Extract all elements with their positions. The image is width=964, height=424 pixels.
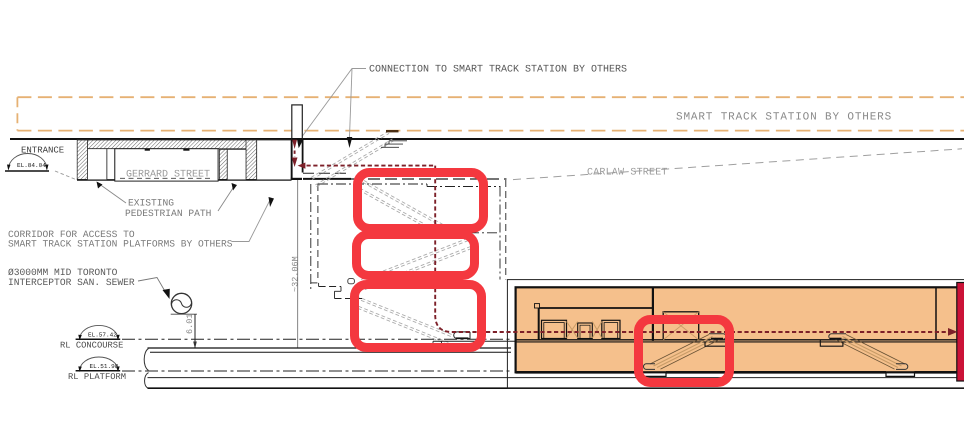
svg-text:RL PLATFORM: RL PLATFORM <box>68 372 126 382</box>
svg-text:ENTRANCE: ENTRANCE <box>21 146 64 156</box>
svg-text:EL.57.42: EL.57.42 <box>88 331 117 338</box>
svg-text:CONNECTION TO SMART TRACK STAT: CONNECTION TO SMART TRACK STATION BY OTH… <box>369 65 627 76</box>
svg-text:RL CONCOURSE: RL CONCOURSE <box>60 341 123 351</box>
svg-text:CARLAW STREET: CARLAW STREET <box>587 168 668 179</box>
svg-text:EL.51.98: EL.51.98 <box>90 363 119 370</box>
svg-text:GERRARD STREET: GERRARD STREET <box>126 170 210 181</box>
svg-text:PEDESTRIAN PATH: PEDESTRIAN PATH <box>125 208 211 219</box>
svg-text:EXISTING: EXISTING <box>128 198 174 209</box>
svg-text:INTERCEPTOR SAN. SEWER: INTERCEPTOR SAN. SEWER <box>8 277 135 288</box>
svg-text:SMART TRACK STATION BY OTHERS: SMART TRACK STATION BY OTHERS <box>676 112 892 124</box>
svg-text:6.01: 6.01 <box>185 314 195 334</box>
svg-text:SMART TRACK STATION PLATFORMS: SMART TRACK STATION PLATFORMS BY OTHERS <box>8 239 233 250</box>
svg-text:~32.06M: ~32.06M <box>291 256 301 292</box>
svg-text:EL.84.04: EL.84.04 <box>17 162 46 169</box>
